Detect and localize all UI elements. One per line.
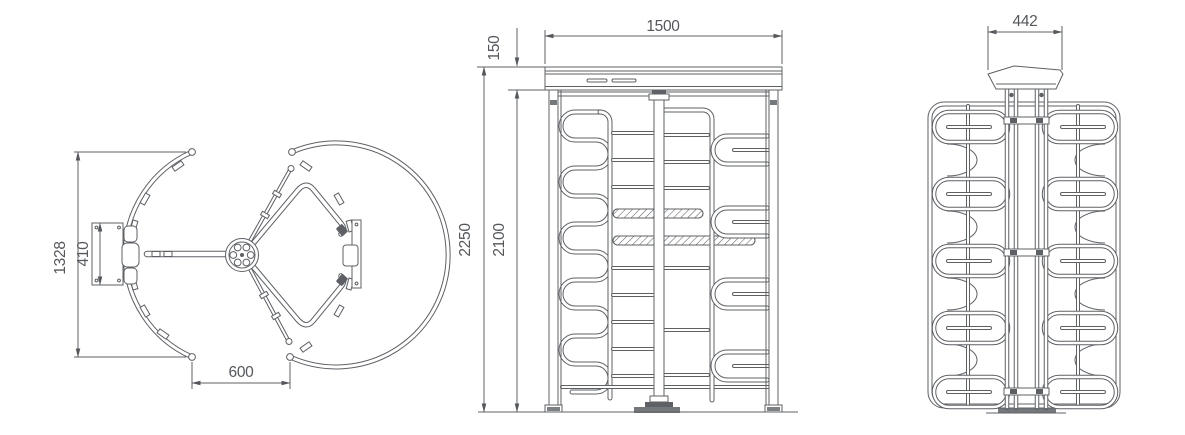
front-right-rails: [664, 135, 708, 375]
front-left-post: [545, 90, 562, 412]
technical-drawing-canvas: 1328 410 600: [0, 0, 1185, 435]
dim-front-canopy: 150: [486, 28, 517, 66]
front-left-rails: [613, 133, 655, 376]
dim-side-head-width: 442: [988, 13, 1062, 70]
front-u-paddles: [713, 136, 769, 380]
front-view: 1500 150 2250 2100: [457, 18, 798, 413]
dim-text-442: 442: [1013, 13, 1038, 30]
plan-view: 1328 410 600: [52, 143, 448, 389]
side-view: 442: [930, 13, 1118, 413]
side-paddles-left: [934, 112, 1008, 407]
front-rotor-column: [634, 89, 680, 413]
dim-text-150: 150: [486, 35, 503, 61]
front-hatched-wing-bars: [613, 209, 755, 245]
plan-rotor-hub: [226, 239, 259, 272]
arc-end-cap: [189, 149, 196, 156]
rail-clamp: [336, 224, 349, 237]
dim-text-410: 410: [75, 241, 92, 267]
plan-right-arc: [290, 143, 448, 367]
dim-text-1500: 1500: [646, 18, 680, 35]
arc-end-cap: [189, 354, 196, 361]
dim-text-1328: 1328: [52, 241, 69, 274]
dim-text-2250: 2250: [457, 223, 474, 257]
plan-left-gate-plate: [92, 223, 139, 285]
side-base-plate: [998, 408, 1056, 413]
dim-plan-passage: 600: [192, 362, 290, 389]
dim-text-2100: 2100: [491, 223, 508, 257]
rail-clamp: [336, 274, 349, 287]
front-canopy: [545, 67, 782, 90]
dim-front-width: 1500: [545, 18, 782, 64]
front-right-post-tube: [664, 110, 712, 400]
side-cap: [988, 66, 1063, 89]
turnstile-technical-drawing: 1328 410 600: [0, 0, 1185, 435]
arc-end-cap: [287, 354, 294, 361]
side-center-column: [986, 90, 1066, 413]
dim-front-frame-height: 2100: [491, 90, 517, 412]
dim-text-600: 600: [229, 364, 255, 381]
arc-end-cap: [289, 149, 296, 156]
